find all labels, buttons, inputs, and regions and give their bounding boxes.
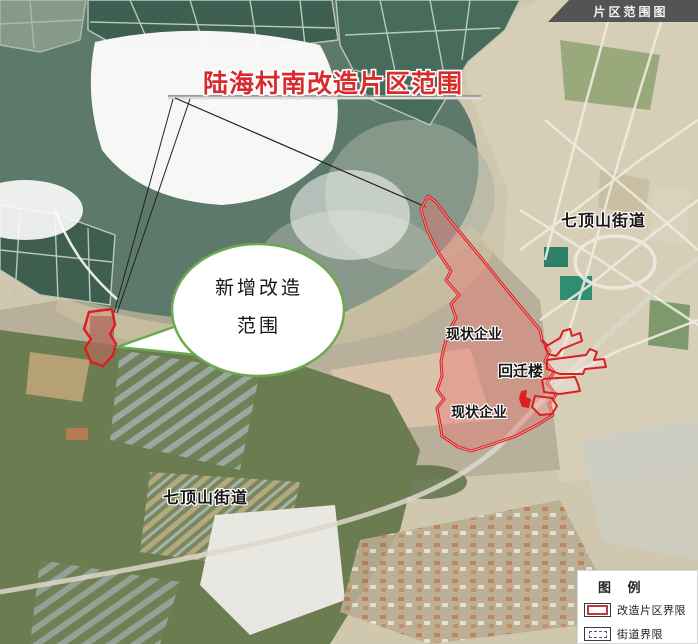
new-addition-polygon <box>84 309 116 366</box>
legend-item-label: 街道界限 <box>617 626 663 642</box>
callout-line2: 范围 <box>186 314 332 338</box>
redevelopment-area-map: 片区范围图 陆海村南改造片区范围 新增改造 范围 七顶山街道 七顶山街道 现状企… <box>0 0 698 644</box>
legend-item-redevelopment: 改造片区界限 <box>584 602 697 618</box>
callout-line1: 新增改造 <box>186 276 332 300</box>
street-boundary-swatch <box>584 627 611 641</box>
label-street-northeast: 七顶山街道 <box>561 207 646 231</box>
legend-item-street: 街道界限 <box>584 626 697 642</box>
corner-banner: 片区范围图 <box>548 0 698 22</box>
redevelopment-boundary-swatch <box>584 603 611 617</box>
label-enterprise-bottom: 现状企业 <box>451 402 507 422</box>
corner-banner-label: 片区范围图 <box>593 3 668 20</box>
label-relocation-building: 回迁楼 <box>498 360 543 381</box>
area-title: 陆海村南改造片区范围 <box>203 64 463 100</box>
label-street-southwest: 七顶山街道 <box>163 484 248 508</box>
callout-text: 新增改造 范围 <box>186 276 332 338</box>
legend: 图 例 改造片区界限 街道界限 <box>577 570 698 644</box>
red-rect-icon <box>587 605 608 615</box>
label-enterprise-top: 现状企业 <box>446 324 502 344</box>
legend-item-label: 改造片区界限 <box>617 602 686 618</box>
legend-title: 图 例 <box>598 577 697 596</box>
dashed-rect-icon <box>589 631 607 638</box>
